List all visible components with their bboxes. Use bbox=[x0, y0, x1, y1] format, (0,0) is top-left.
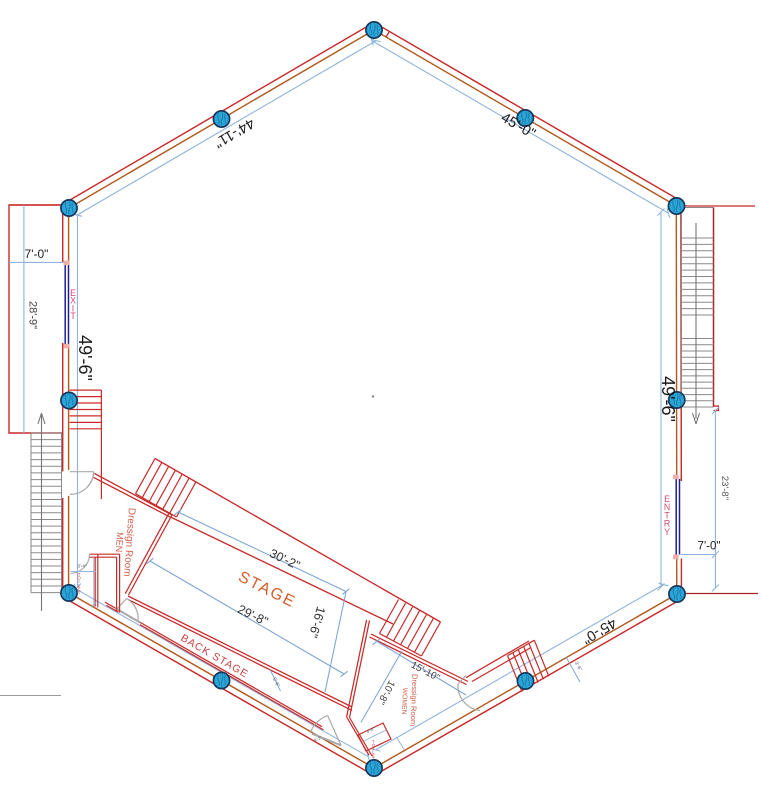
svg-text:3'-4": 3'-4" bbox=[78, 564, 87, 569]
svg-text:49'-6": 49'-6" bbox=[658, 376, 678, 422]
svg-text:Dressign Room: Dressign Room bbox=[409, 674, 420, 727]
svg-text:23'-8": 23'-8" bbox=[719, 476, 730, 500]
svg-text:MEN: MEN bbox=[114, 532, 125, 553]
svg-text:7'-0": 7'-0" bbox=[25, 247, 49, 261]
svg-text:49'-6": 49'-6" bbox=[75, 335, 95, 381]
svg-text:28'-9": 28'-9" bbox=[27, 301, 39, 329]
svg-text:7'-0": 7'-0" bbox=[698, 541, 721, 553]
svg-text:WOMEN: WOMEN bbox=[400, 688, 408, 715]
svg-text:EXIT: EXIT bbox=[70, 288, 76, 321]
svg-text:ENTRY: ENTRY bbox=[664, 494, 670, 537]
